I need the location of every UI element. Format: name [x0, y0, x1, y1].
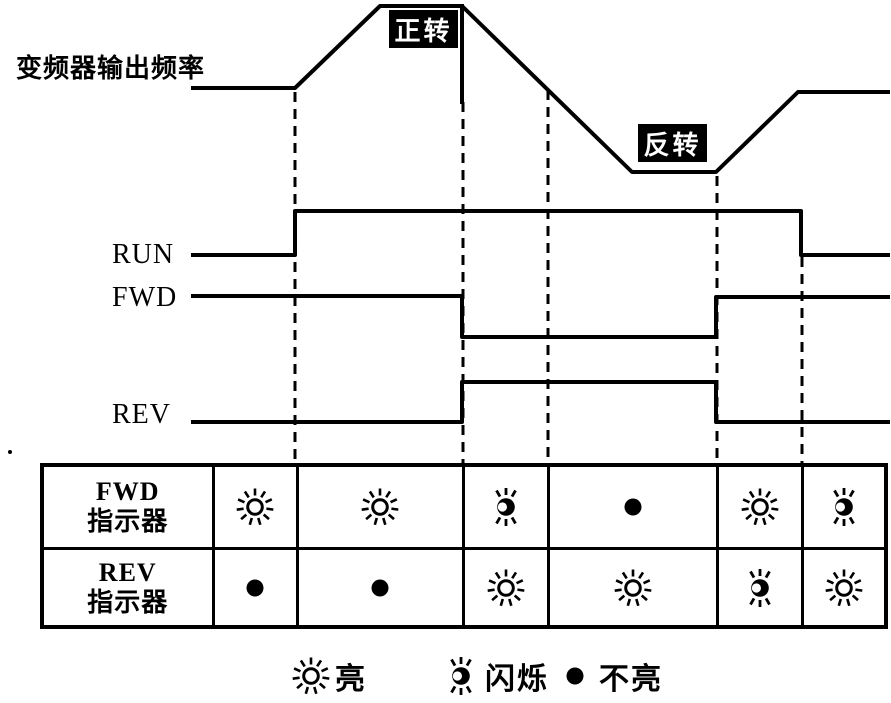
legend-item-lit: 亮 [290, 650, 367, 702]
run-signal-label: RUN [112, 239, 174, 271]
off-icon [554, 655, 596, 697]
fwd-indicator-cell [717, 465, 802, 549]
timing-diagram-figure: 变频器输出频率 正转 反转 RUN FWD REV FWD 指示器 REV 指示… [0, 0, 891, 703]
fwd-header-line1: FWD [44, 477, 212, 507]
fwd-indicator-row: FWD 指示器 [42, 465, 886, 549]
forward-rotation-tag: 正转 [389, 10, 458, 48]
rev-indicator-cell [717, 549, 802, 628]
rev-signal-waveform [193, 382, 888, 422]
legend-label-lit: 亮 [335, 654, 367, 698]
legend-label-flashing: 闪烁 [485, 654, 549, 698]
fwd-indicator-row-header: FWD 指示器 [42, 465, 213, 549]
fwd-indicator-cell [548, 465, 717, 549]
lit-icon [234, 486, 276, 528]
fwd-indicator-cell [297, 465, 463, 549]
frequency-axis-label: 变频器输出频率 [16, 48, 205, 85]
indicator-table: FWD 指示器 REV 指示器 [40, 463, 888, 629]
legend-label-off: 不亮 [599, 654, 663, 698]
off-icon [359, 567, 401, 609]
rev-indicator-row: REV 指示器 [42, 549, 886, 628]
rev-indicator-row-header: REV 指示器 [42, 549, 213, 628]
fwd-header-line2: 指示器 [44, 507, 212, 537]
lit-icon [823, 567, 865, 609]
reverse-rotation-tag: 反转 [638, 124, 707, 162]
lit-icon [739, 486, 781, 528]
run-signal-waveform [193, 211, 888, 255]
stray-mark [8, 450, 12, 454]
lit-icon [485, 567, 527, 609]
legend-item-off: 不亮 [554, 650, 663, 702]
lit-icon [359, 486, 401, 528]
fwd-signal-waveform [193, 296, 888, 337]
lit-icon [290, 655, 332, 697]
rev-header-line2: 指示器 [44, 588, 212, 618]
fwd-signal-label: FWD [112, 282, 177, 314]
flashing-icon [739, 567, 781, 609]
rev-indicator-cell [548, 549, 717, 628]
off-icon [234, 567, 276, 609]
flashing-icon [485, 486, 527, 528]
flashing-icon [823, 486, 865, 528]
rev-indicator-cell [802, 549, 886, 628]
legend-item-flashing: 闪烁 [440, 650, 549, 702]
rev-indicator-cell [297, 549, 463, 628]
flashing-icon [440, 655, 482, 697]
fwd-indicator-cell [213, 465, 297, 549]
off-icon [612, 486, 654, 528]
fwd-indicator-cell [463, 465, 548, 549]
lit-icon [612, 567, 654, 609]
frequency-waveform [193, 6, 888, 172]
rev-indicator-cell [213, 549, 297, 628]
rev-signal-label: REV [112, 399, 171, 431]
rev-indicator-cell [463, 549, 548, 628]
fwd-indicator-cell [802, 465, 886, 549]
rev-header-line1: REV [44, 558, 212, 588]
